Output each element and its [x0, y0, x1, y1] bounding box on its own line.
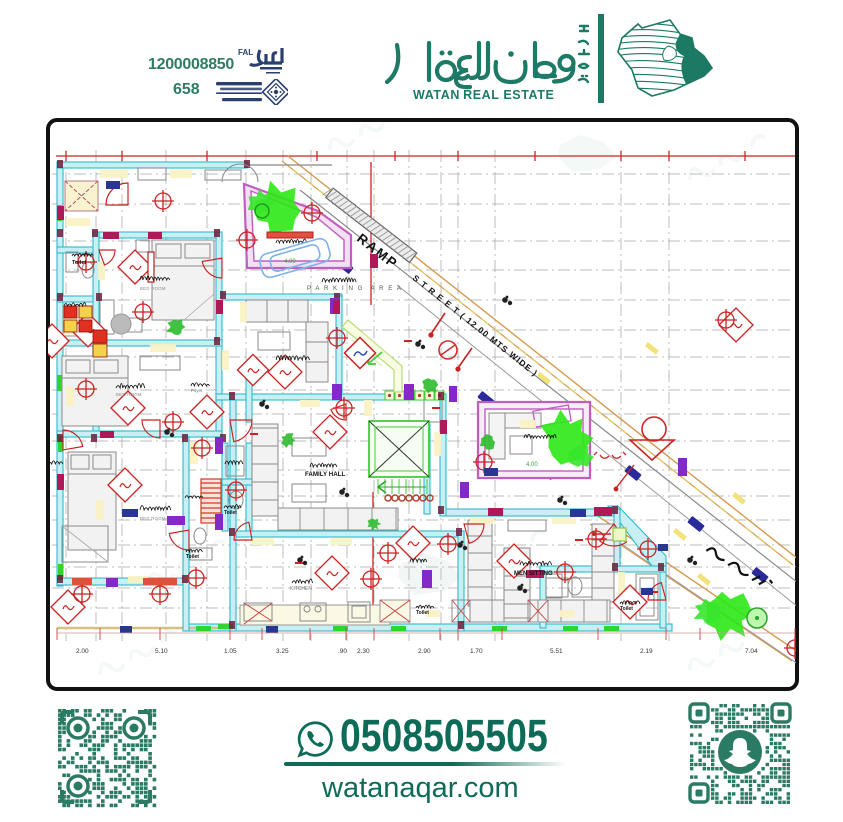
svg-text:FAMILY HALL: FAMILY HALL [305, 471, 345, 478]
svg-text:2.90: 2.90 [418, 648, 431, 655]
svg-text:5.10: 5.10 [155, 648, 168, 655]
svg-text:4.00: 4.00 [284, 259, 296, 265]
svg-text:3.25: 3.25 [276, 648, 289, 655]
svg-text:Toilet: Toilet [186, 554, 199, 560]
svg-text:KITCHEN: KITCHEN [290, 586, 312, 592]
svg-text:2.30: 2.30 [357, 648, 370, 655]
svg-text:BED ROOM: BED ROOM [140, 286, 166, 291]
svg-text:Toilet: Toilet [416, 610, 429, 616]
svg-text:Toilet: Toilet [72, 260, 86, 266]
svg-text:4.00: 4.00 [526, 462, 538, 468]
svg-text:BED ROOM: BED ROOM [140, 516, 166, 521]
svg-text:S T R E E T ( 12.00 MTS WIDE ): S T R E E T ( 12.00 MTS WIDE ) [411, 273, 540, 379]
svg-text:.90: .90 [338, 648, 347, 655]
svg-text:7.04: 7.04 [745, 648, 758, 655]
svg-text:BED ROOM: BED ROOM [116, 392, 142, 397]
svg-text:MEN SITTING: MEN SITTING [514, 571, 553, 577]
svg-text:Toilet: Toilet [620, 606, 633, 612]
svg-text:2.00: 2.00 [76, 648, 89, 655]
svg-text:1.70: 1.70 [470, 648, 483, 655]
svg-text:Toilet: Toilet [224, 510, 237, 516]
svg-text:P A R K I N G A R E A: P A R K I N G A R E A [307, 286, 402, 292]
svg-text:FAL: FAL [238, 48, 253, 57]
svg-text:1.05: 1.05 [224, 648, 237, 655]
svg-text:Foyer: Foyer [191, 388, 203, 393]
svg-text:2.19: 2.19 [640, 648, 653, 655]
svg-text:5.51: 5.51 [550, 648, 563, 655]
